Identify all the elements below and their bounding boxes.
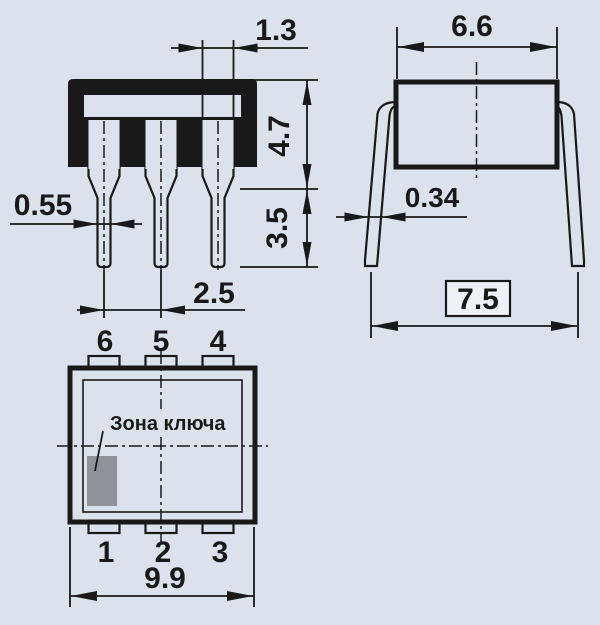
pin-number-1: 1 bbox=[98, 536, 115, 569]
dim-lead-width: 0.55 bbox=[10, 189, 142, 229]
top-view: Зона ключа 6 5 4 1 2 3 9.9 bbox=[57, 325, 268, 607]
package-outline-drawing: 1.3 4.7 3.5 0.55 bbox=[0, 0, 600, 625]
dim-arrow bbox=[303, 81, 312, 105]
lead-left-side bbox=[365, 102, 397, 266]
dim-arrow bbox=[303, 242, 312, 266]
key-zone bbox=[87, 456, 117, 506]
pin-number-5: 5 bbox=[153, 325, 170, 358]
dim-arrow bbox=[71, 591, 97, 601]
body-cavity-band bbox=[84, 95, 241, 117]
dim-arrow bbox=[74, 220, 98, 229]
dim-arrow bbox=[551, 321, 577, 331]
dim-lead-length-label: 3.5 bbox=[261, 207, 294, 249]
technical-drawing-canvas: 1.3 4.7 3.5 0.55 bbox=[0, 0, 600, 625]
dim-arrow bbox=[398, 42, 424, 52]
dim-arrow bbox=[372, 321, 398, 331]
dim-arrow bbox=[345, 213, 369, 222]
dim-lead-span-label: 7.5 bbox=[457, 283, 499, 316]
dim-lead-span: 7.5 bbox=[371, 272, 578, 338]
dim-lead-pitch: 2.5 bbox=[77, 270, 245, 318]
dim-arrow bbox=[303, 164, 312, 188]
dim-arrow bbox=[382, 213, 406, 222]
dim-arrow bbox=[227, 591, 253, 601]
pin-number-4: 4 bbox=[210, 325, 227, 358]
front-view: 1.3 4.7 3.5 0.55 bbox=[10, 14, 318, 318]
dim-arrow bbox=[179, 44, 203, 53]
pin-number-6: 6 bbox=[97, 325, 114, 358]
dim-body-length-label: 9.9 bbox=[144, 562, 186, 595]
dim-arrow bbox=[161, 306, 185, 315]
dim-arrow bbox=[234, 44, 258, 53]
dim-lead-pitch-label: 2.5 bbox=[193, 277, 235, 310]
key-zone-label: Зона ключа bbox=[110, 413, 226, 435]
dim-body-depth-label: 6.6 bbox=[451, 10, 493, 43]
dim-arrow bbox=[111, 220, 135, 229]
dim-shoulder-width-label: 1.3 bbox=[255, 14, 297, 47]
dim-body-height-label: 4.7 bbox=[263, 115, 296, 157]
side-view: 6.6 0.34 7.5 bbox=[336, 10, 584, 338]
dim-lead-thickness: 0.34 bbox=[336, 182, 467, 222]
dim-lead-thickness-label: 0.34 bbox=[405, 182, 460, 213]
dim-lead-width-label: 0.55 bbox=[14, 189, 72, 222]
dim-arrow bbox=[80, 306, 104, 315]
dim-arrow bbox=[530, 42, 556, 52]
pin-number-3: 3 bbox=[212, 536, 229, 569]
dim-arrow bbox=[303, 190, 312, 214]
